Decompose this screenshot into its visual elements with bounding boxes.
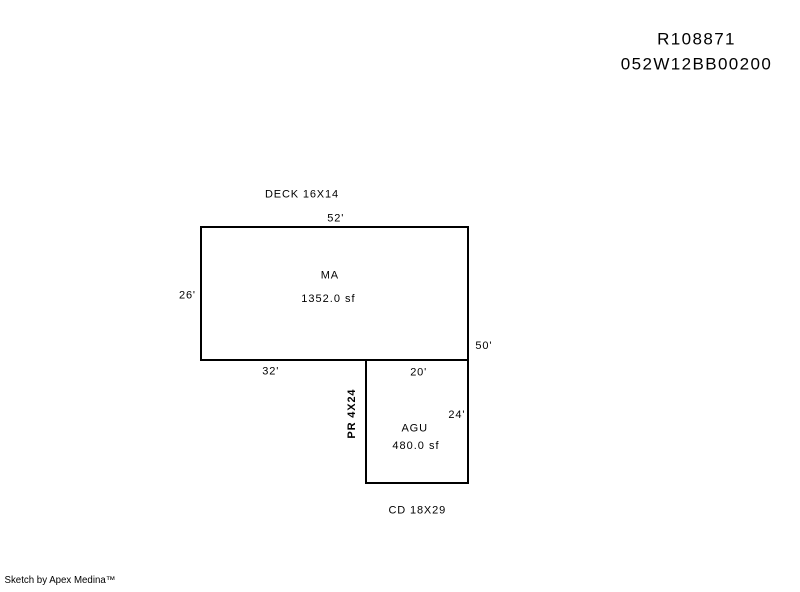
svg-text:DECK 16X14: DECK 16X14 (265, 189, 339, 201)
svg-text:MA: MA (321, 269, 339, 281)
svg-text:52': 52' (327, 213, 344, 225)
svg-text:480.0 sf: 480.0 sf (392, 440, 439, 452)
svg-text:R108871: R108871 (657, 30, 736, 49)
svg-text:50': 50' (475, 340, 492, 352)
svg-text:AGU: AGU (402, 423, 428, 435)
svg-text:Sketch by Apex Medina™: Sketch by Apex Medina™ (5, 575, 116, 586)
svg-text:1352.0 sf: 1352.0 sf (301, 293, 355, 305)
svg-text:CD 18X29: CD 18X29 (389, 505, 447, 517)
svg-text:26': 26' (179, 290, 196, 302)
svg-text:24': 24' (448, 409, 465, 421)
svg-text:20': 20' (410, 367, 427, 379)
svg-text:PR 4X24: PR 4X24 (346, 389, 358, 439)
svg-text:052W12BB00200: 052W12BB00200 (621, 55, 772, 74)
svg-text:32': 32' (262, 366, 279, 378)
